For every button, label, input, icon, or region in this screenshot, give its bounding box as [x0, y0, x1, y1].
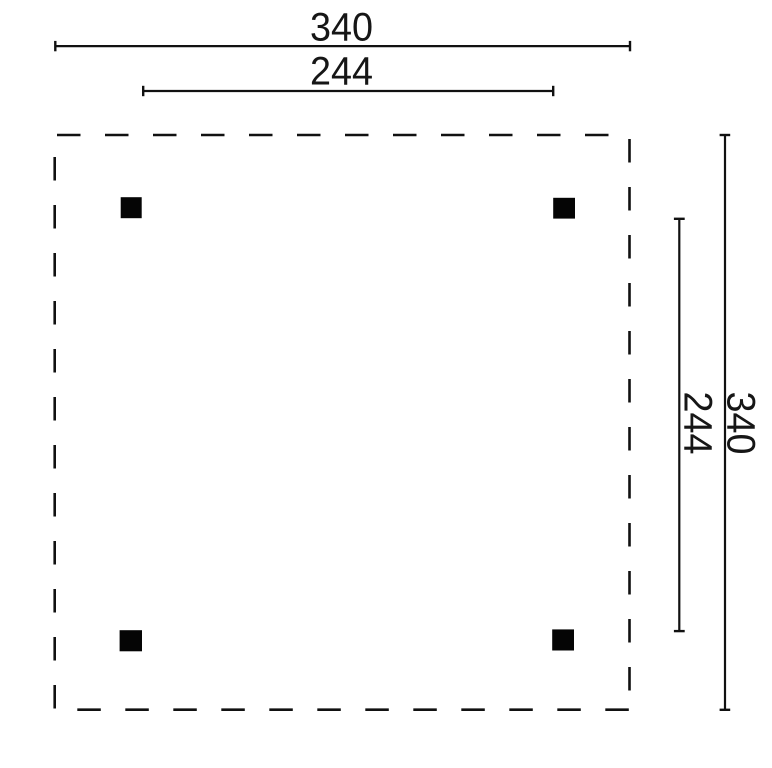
- svg-text:244: 244: [310, 50, 373, 94]
- svg-text:244: 244: [676, 392, 720, 455]
- svg-text:340: 340: [719, 392, 763, 455]
- svg-text:340: 340: [310, 6, 373, 50]
